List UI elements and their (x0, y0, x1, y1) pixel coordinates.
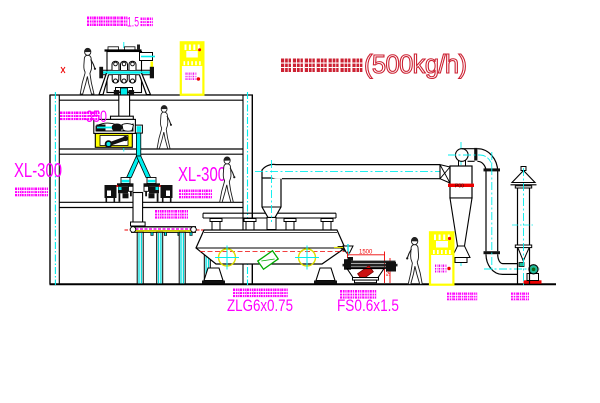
svg-text:ZLG6x0.75: ZLG6x0.75 (227, 297, 293, 315)
svg-text:(500kg/h): (500kg/h) (364, 51, 467, 79)
svg-text:XL-300: XL-300 (14, 159, 62, 182)
svg-text:1500: 1500 (359, 250, 373, 256)
svg-text:1.5: 1.5 (127, 15, 139, 30)
svg-text:FS0.6x1.5: FS0.6x1.5 (337, 297, 399, 315)
svg-text:P00: P00 (455, 184, 464, 190)
svg-text:XL-300: XL-300 (178, 163, 226, 186)
svg-text:350: 350 (86, 107, 107, 126)
